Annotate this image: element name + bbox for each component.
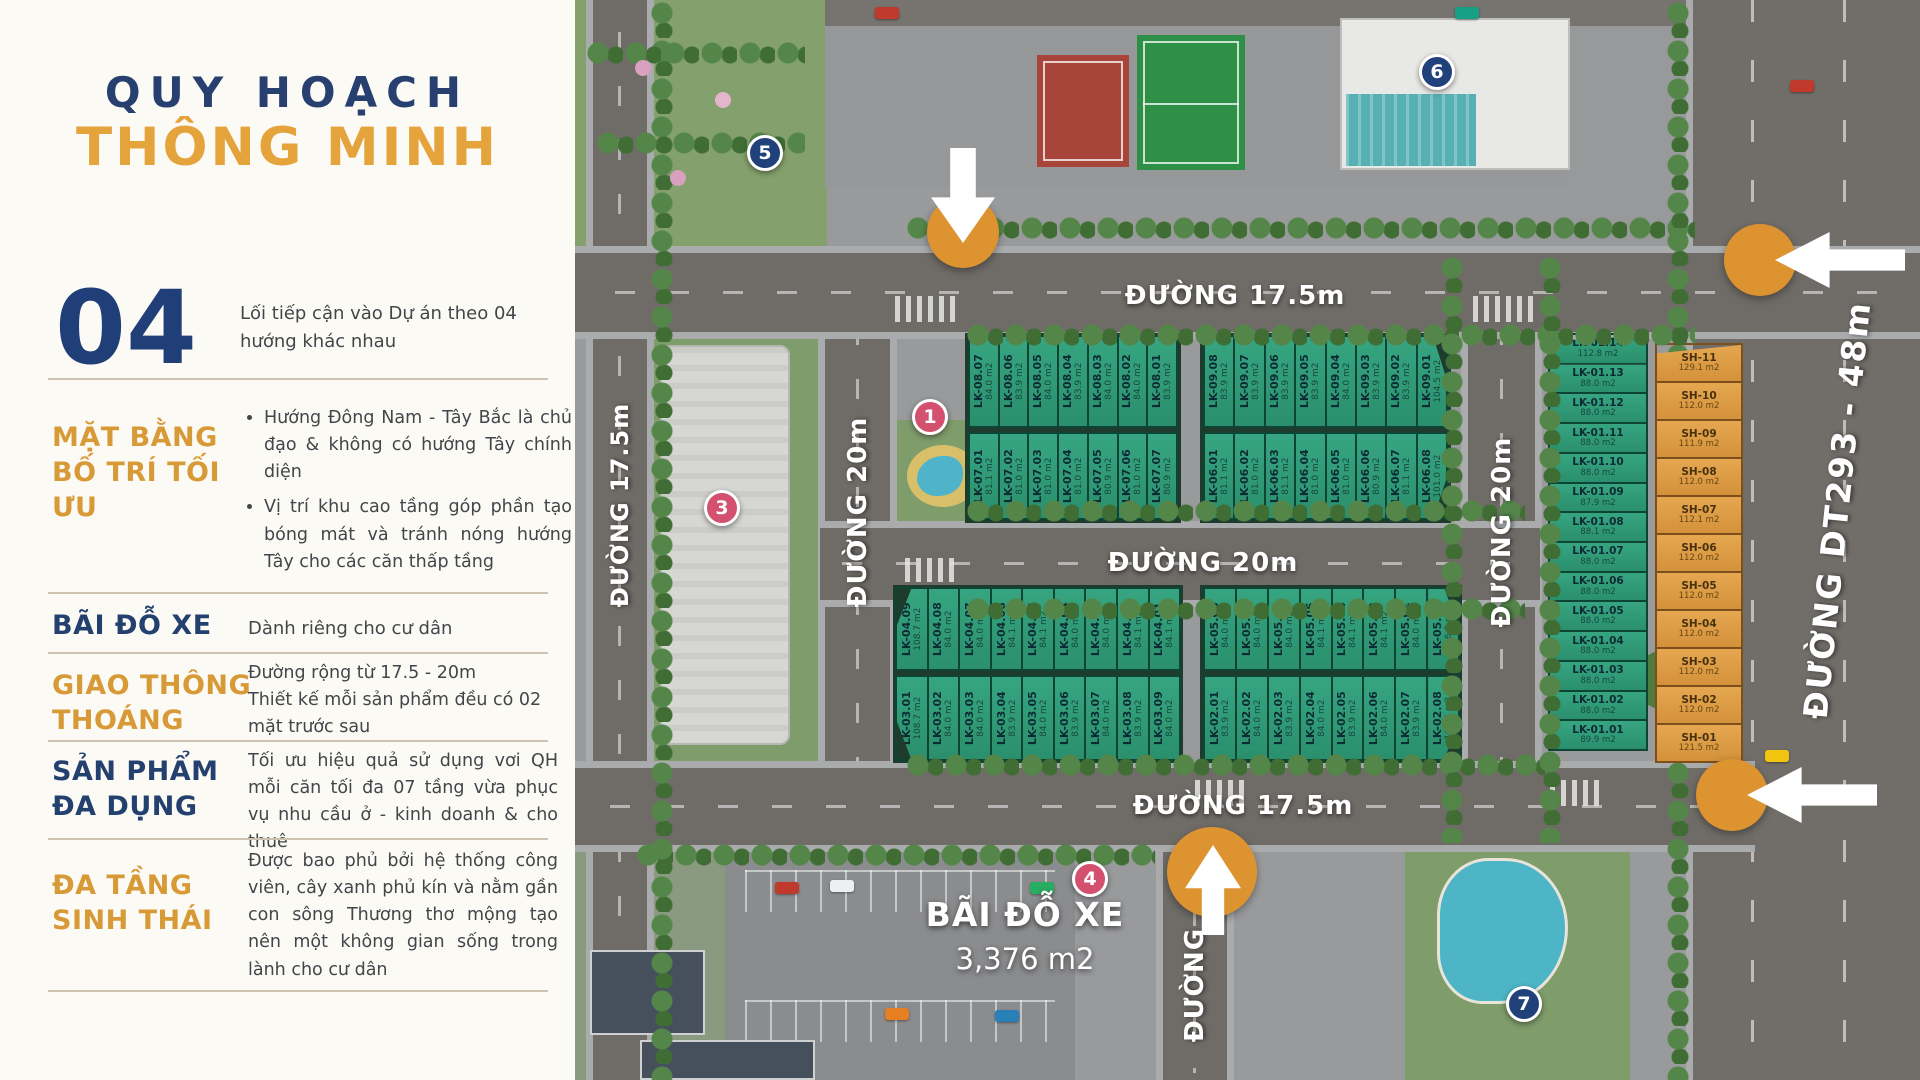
tree-row <box>965 322 1695 348</box>
parking-label-title: BÃI ĐỖ XE <box>905 895 1145 934</box>
lot-cell: SH-04112.0 m2 <box>1657 611 1741 649</box>
site-plan-map: LK-08.0784.0 m2LK-08.0683.9 m2LK-08.0584… <box>575 0 1920 1080</box>
section-body-traffic: Đường rộng từ 17.5 - 20m Thiết kế mỗi sả… <box>248 660 558 741</box>
lot-cell: LK-01.0488.0 m2 <box>1550 632 1646 662</box>
lot-cell: LK-02.0783.9 m2 <box>1396 677 1428 759</box>
top-edge-road <box>825 0 1705 26</box>
car <box>875 7 899 19</box>
divider <box>48 990 548 992</box>
divider <box>48 378 548 380</box>
badge-4: 4 <box>1072 861 1108 897</box>
section-heading-layout: MẶT BẰNG BỐ TRÍ TỐI ƯU <box>52 420 247 525</box>
tree-column <box>1439 255 1465 843</box>
lot-cell: LK-09.0683.9 m2 <box>1266 337 1296 426</box>
lot-cell: LK-09.0484.0 m2 <box>1327 337 1357 426</box>
lot-block-sh: SH-11129.1 m2SH-10112.0 m2SH-09111.9 m2S… <box>1655 343 1743 763</box>
lot-cell: SH-07112.1 m2 <box>1657 497 1741 535</box>
lot-cell: LK-08.0683.9 m2 <box>1000 337 1030 426</box>
tree-column <box>649 0 675 1080</box>
basketball-court <box>1037 55 1129 167</box>
lot-cell: LK-03.0584.0 m2 <box>1023 677 1055 759</box>
lot-cell: LK-03.0883.9 m2 <box>1118 677 1150 759</box>
lot-cell: LK-02.0183.9 m2 <box>1205 677 1237 759</box>
badge-6: 6 <box>1419 54 1455 90</box>
section-body-parking: Dành riêng cho cư dân <box>248 615 548 643</box>
road-label-middle: ĐƯỜNG 20m <box>1108 548 1299 578</box>
badge-1: 1 <box>912 399 948 435</box>
infographic-slide: QUY HOẠCH THÔNG MINH 04 Lối tiếp cận vào… <box>0 0 1920 1080</box>
lot-cell: LK-01.0888.1 m2 <box>1550 513 1646 543</box>
lot-cell: LK-01.0388.0 m2 <box>1550 662 1646 692</box>
car <box>885 1008 909 1020</box>
lot-cell: LK-01.1088.0 m2 <box>1550 454 1646 484</box>
lot-cell: SH-10112.0 m2 <box>1657 383 1741 421</box>
lot-cell: LK-03.0784.0 m2 <box>1086 677 1118 759</box>
road-label-left-vertical: ĐƯỜNG 17.5m <box>606 403 634 608</box>
lot-block-lk09: LK-09.0883.9 m2LK-09.0783.9 m2LK-09.0683… <box>1203 335 1448 428</box>
title-line1: QUY HOẠCH <box>30 68 545 118</box>
title-line2: THÔNG MINH <box>30 118 545 179</box>
lot-cell: LK-08.0284.0 m2 <box>1119 337 1149 426</box>
lot-cell: LK-01.1388.0 m2 <box>1550 365 1646 395</box>
highrise-tower <box>660 345 790 745</box>
lot-cell: LK-09.0583.9 m2 <box>1296 337 1326 426</box>
lot-cell: LK-08.0483.9 m2 <box>1059 337 1089 426</box>
tree-row <box>635 842 1155 868</box>
lot-block-lk02: LK-02.0183.9 m2LK-02.0284.0 m2LK-02.0383… <box>1203 675 1460 761</box>
lot-cell: LK-03.0683.9 m2 <box>1055 677 1087 759</box>
lot-cell: SH-03112.0 m2 <box>1657 649 1741 687</box>
page-title: QUY HOẠCH THÔNG MINH <box>30 68 545 179</box>
tree-column <box>1537 255 1563 843</box>
lot-cell: LK-08.0584.0 m2 <box>1029 337 1059 426</box>
lot-cell: LK-02.0484.0 m2 <box>1301 677 1333 759</box>
parking-label-area: 3,376 m2 <box>905 942 1145 976</box>
section-heading-eco: ĐA TẦNG SINH THÁI <box>52 868 252 938</box>
road-label-bottom-vertical: ĐƯỜNG <box>1180 928 1210 1042</box>
lot-cell: SH-01121.5 m2 <box>1657 725 1741 761</box>
lot-block-lk08: LK-08.0784.0 m2LK-08.0683.9 m2LK-08.0584… <box>968 335 1178 428</box>
lot-cell: SH-09111.9 m2 <box>1657 421 1741 459</box>
lot-cell: LK-09.0383.9 m2 <box>1357 337 1387 426</box>
left-info-panel: QUY HOẠCH THÔNG MINH 04 Lối tiếp cận vào… <box>0 0 575 1080</box>
existing-building <box>590 950 705 1035</box>
lot-cell: LK-09.0283.9 m2 <box>1387 337 1417 426</box>
road-label-v20-right: ĐƯỜNG 20m <box>1487 437 1517 628</box>
layout-bullet-1: Hướng Đông Nam - Tây Bắc là chủ đạo & kh… <box>264 405 572 486</box>
lot-cell: LK-08.0384.0 m2 <box>1089 337 1119 426</box>
lot-cell: LK-09.0883.9 m2 <box>1205 337 1235 426</box>
divider <box>48 592 548 594</box>
lot-cell: LK-02.0383.9 m2 <box>1269 677 1301 759</box>
clubhouse-building <box>1340 18 1570 170</box>
lot-cell: SH-05112.0 m2 <box>1657 573 1741 611</box>
badge-5: 5 <box>747 135 783 171</box>
layout-bullet-2: Vị trí khu cao tầng góp phần tạo bóng má… <box>264 494 572 575</box>
number-caption: Lối tiếp cận vào Dự án theo 04 hướng khá… <box>240 300 535 356</box>
blossom-tree <box>635 60 651 76</box>
lot-cell: LK-08.0784.0 m2 <box>970 337 1000 426</box>
section-body-eco: Được bao phủ bởi hệ thống công viên, cây… <box>248 848 558 984</box>
lot-cell: LK-01.0688.0 m2 <box>1550 573 1646 603</box>
lot-cell: SH-08112.0 m2 <box>1657 459 1741 497</box>
lot-cell: LK-03.0984.0 m2 <box>1150 677 1180 759</box>
football-field <box>1137 35 1245 170</box>
lot-cell: LK-01.0588.0 m2 <box>1550 602 1646 632</box>
lot-cell: LK-03.0284.0 m2 <box>929 677 961 759</box>
road-label-top: ĐƯỜNG 17.5m <box>1125 281 1346 311</box>
lot-cell: LK-04.09108.7 m2 <box>897 589 929 669</box>
divider <box>48 740 548 742</box>
lot-cell: LK-01.1188.0 m2 <box>1550 424 1646 454</box>
crosswalk <box>905 558 955 582</box>
lot-cell: LK-03.0384.0 m2 <box>960 677 992 759</box>
car <box>775 882 799 894</box>
car <box>995 1010 1019 1022</box>
car <box>1455 7 1479 19</box>
section-body-product: Tối ưu hiệu quả sử dụng vơi QH mỗi căn t… <box>248 748 558 857</box>
lot-cell: LK-02.0284.0 m2 <box>1237 677 1269 759</box>
lot-cell: LK-02.0583.9 m2 <box>1333 677 1365 759</box>
lot-cell: LK-02.0684.0 m2 <box>1364 677 1396 759</box>
section-body-layout: Hướng Đông Nam - Tây Bắc là chủ đạo & kh… <box>248 405 572 584</box>
park-trees <box>585 40 805 66</box>
lot-cell: LK-01.0189.9 m2 <box>1550 721 1646 749</box>
lot-cell: LK-01.0788.0 m2 <box>1550 543 1646 573</box>
lot-cell: LK-01.1288.0 m2 <box>1550 394 1646 424</box>
car <box>1765 750 1789 762</box>
lot-cell: LK-08.0183.9 m2 <box>1148 337 1176 426</box>
section-heading-traffic: GIAO THÔNG THOÁNG <box>52 668 262 738</box>
teal-roof <box>1346 94 1476 166</box>
badge-3: 3 <box>704 490 740 526</box>
section-heading-product: SẢN PHẨM ĐA DỤNG <box>52 754 262 824</box>
tree-row <box>905 215 1695 241</box>
divider <box>48 652 548 654</box>
lot-cell: LK-03.01108.7 m2 <box>897 677 929 759</box>
lot-cell: LK-04.0884.0 m2 <box>929 589 961 669</box>
big-number-04: 04 <box>55 278 197 380</box>
crosswalk <box>895 296 955 322</box>
blossom-tree <box>715 92 731 108</box>
divider <box>48 838 548 840</box>
crosswalk <box>1473 296 1533 322</box>
lot-cell: LK-03.0483.9 m2 <box>992 677 1024 759</box>
parking-area-label: BÃI ĐỖ XE 3,376 m2 <box>905 895 1145 976</box>
blossom-tree <box>670 170 686 186</box>
road-label-v20-left: ĐƯỜNG 20m <box>843 417 873 608</box>
lot-cell: LK-09.0783.9 m2 <box>1235 337 1265 426</box>
lot-cell: LK-01.0987.9 m2 <box>1550 484 1646 514</box>
car <box>1790 80 1814 92</box>
lot-block-lk01: LK-01.14112.8 m2LK-01.1388.0 m2LK-01.128… <box>1548 333 1648 751</box>
lot-block-lk03: LK-03.01108.7 m2LK-03.0284.0 m2LK-03.038… <box>895 675 1181 761</box>
car <box>1030 882 1054 894</box>
lot-cell: LK-01.0288.0 m2 <box>1550 692 1646 722</box>
lot-cell: SH-06112.0 m2 <box>1657 535 1741 573</box>
badge-7: 7 <box>1506 986 1542 1022</box>
lot-cell: SH-11129.1 m2 <box>1657 345 1741 383</box>
road-label-bottom: ĐƯỜNG 17.5m <box>1133 791 1354 821</box>
lot-cell: SH-02112.0 m2 <box>1657 687 1741 725</box>
car <box>830 880 854 892</box>
